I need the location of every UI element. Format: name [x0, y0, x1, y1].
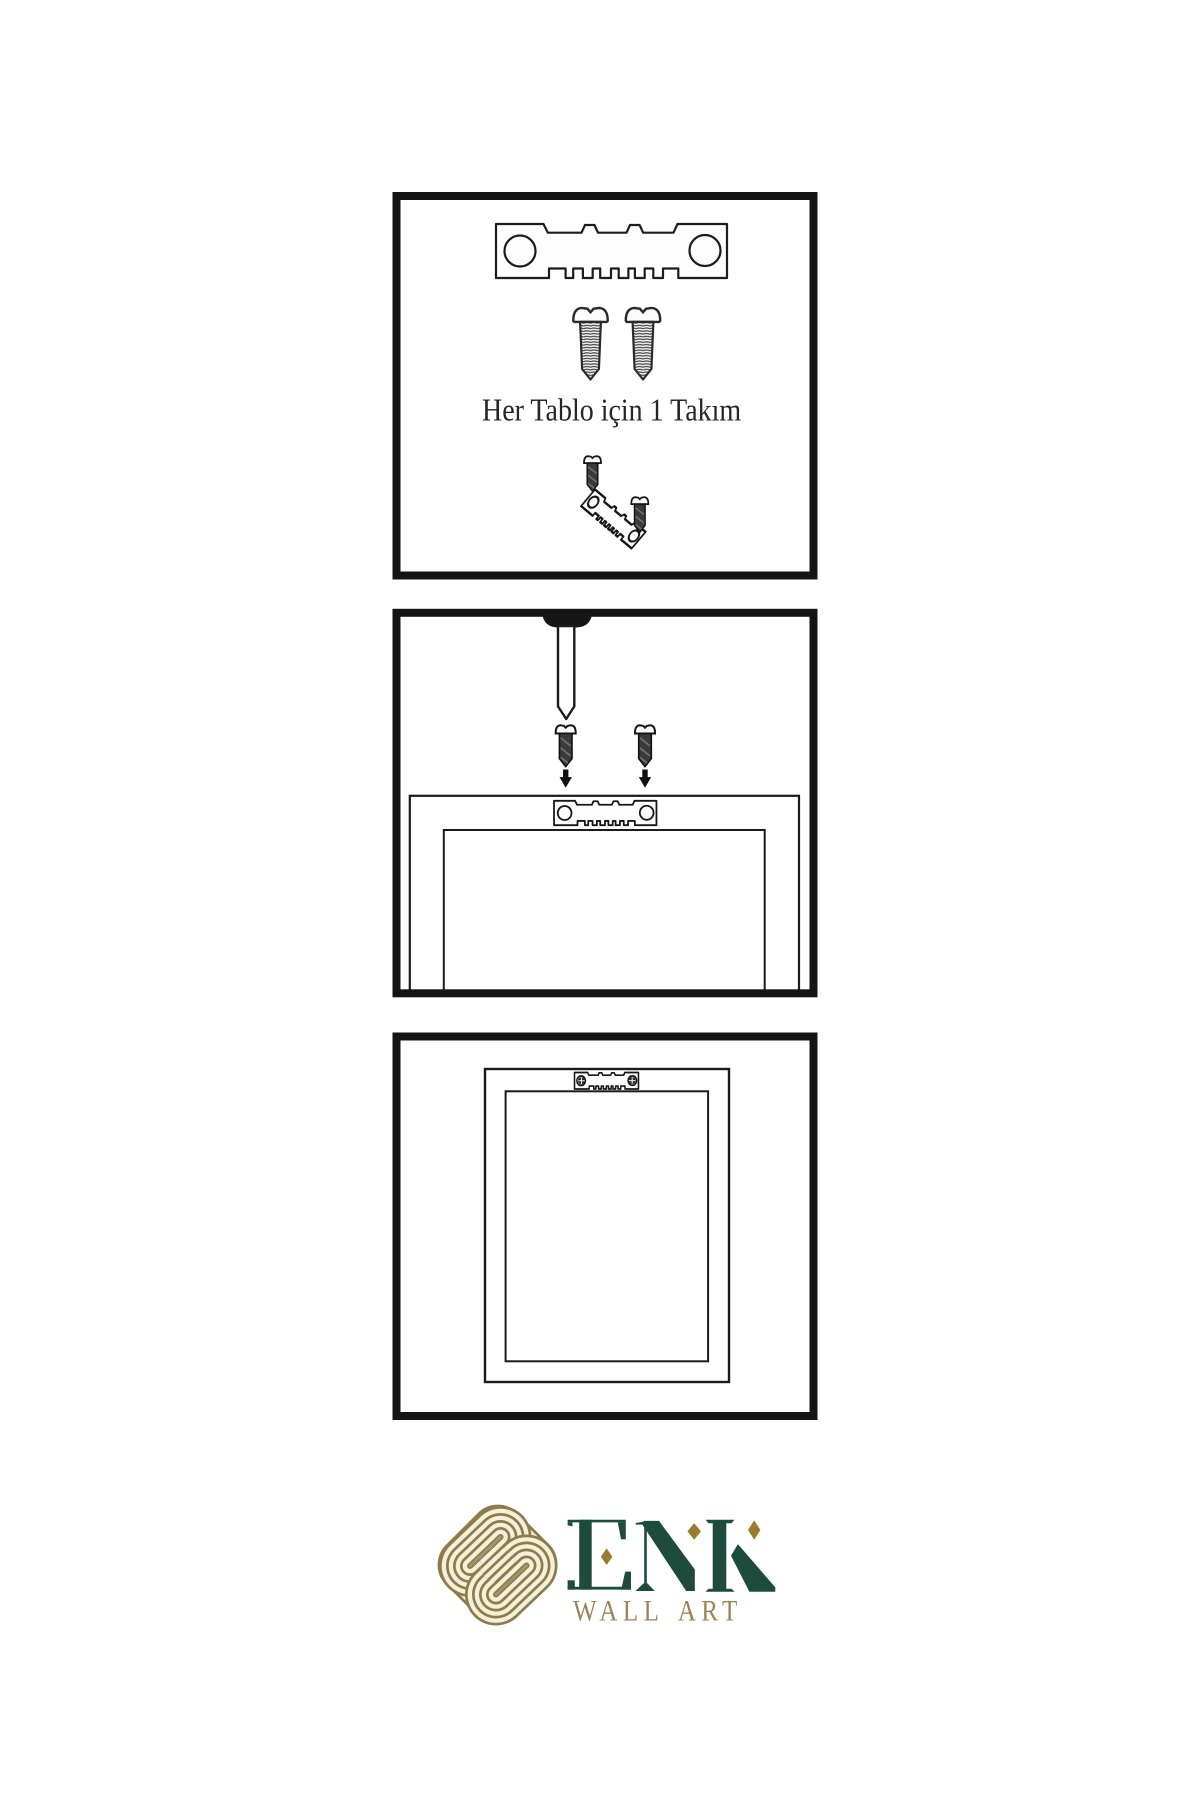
svg-text:Her Tablo için 1 Takım: Her Tablo için 1 Takım — [482, 394, 741, 428]
svg-text:WALL ART: WALL ART — [573, 1595, 743, 1627]
